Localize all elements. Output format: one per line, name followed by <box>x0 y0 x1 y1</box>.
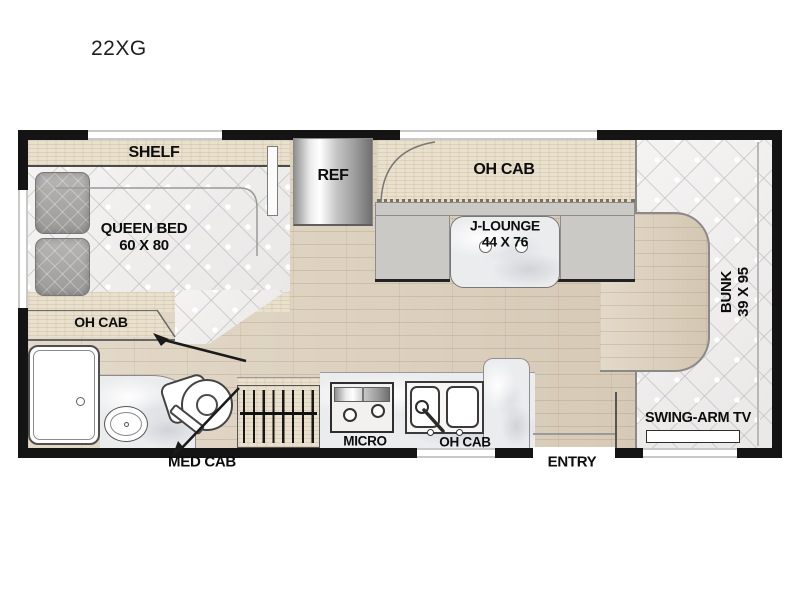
queen-bed-label: QUEEN BED 60 X 80 <box>101 221 187 255</box>
entry-label: ENTRY <box>548 455 597 472</box>
window <box>417 448 495 458</box>
queen-bed-name: QUEEN BED <box>101 221 187 238</box>
swing-arm-tv-label: SWING-ARM TV <box>645 410 751 426</box>
window <box>18 190 28 308</box>
j-lounge-name: J-LOUNGE <box>470 218 540 234</box>
bedroom-oh-cab-label: OH CAB <box>74 315 127 331</box>
window <box>643 448 737 458</box>
bunk-name: BUNK <box>718 271 735 313</box>
j-lounge-size: 44 X 76 <box>470 234 540 250</box>
window <box>88 130 222 140</box>
floorplan: SHELF QUEEN BED 60 X 80 OH CAB REF OH CA… <box>18 130 782 458</box>
page-title: 22XG <box>91 37 147 61</box>
floorplan-page: 22XG <box>0 0 800 600</box>
window <box>400 130 597 140</box>
micro-label: MICRO <box>343 433 387 448</box>
bunk-label: BUNK 39 X 95 <box>713 247 757 337</box>
dinette-oh-cab-label: OH CAB <box>473 161 534 179</box>
queen-bed-size: 60 X 80 <box>101 238 187 255</box>
shelf-label: SHELF <box>129 144 180 162</box>
ref-label: REF <box>317 167 348 185</box>
j-lounge-label: J-LOUNGE 44 X 76 <box>470 218 540 249</box>
plan-lines <box>18 130 782 458</box>
bunk-size: 39 X 95 <box>735 267 752 317</box>
med-cab-label: MED CAB <box>168 455 236 472</box>
